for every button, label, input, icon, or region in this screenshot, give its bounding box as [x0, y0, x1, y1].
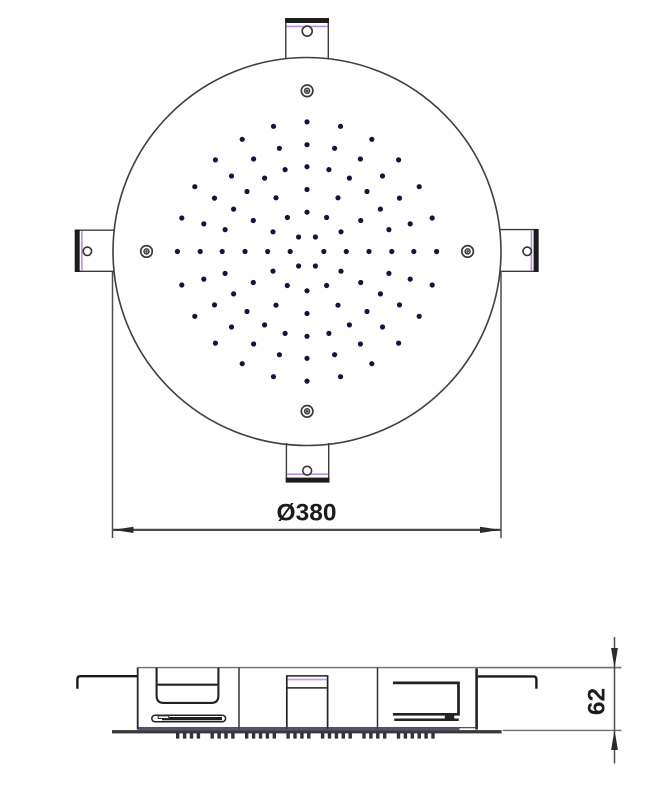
svg-text:Ø380: Ø380	[277, 500, 337, 527]
svg-text:62: 62	[584, 688, 611, 715]
